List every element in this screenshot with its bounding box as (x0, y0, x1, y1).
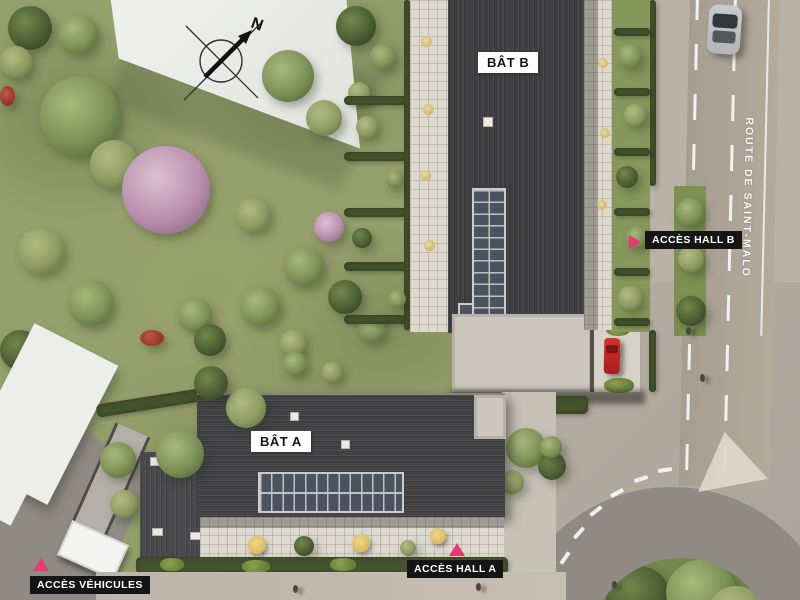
bat-a-roof-terrace (474, 395, 506, 439)
tree (194, 366, 228, 400)
bat-b-solar-panels (472, 188, 506, 316)
tree (388, 290, 406, 308)
garden-hedge (614, 148, 650, 156)
access-marker-icon (449, 543, 465, 556)
tree (540, 436, 562, 458)
skylight (290, 412, 299, 421)
parasol (430, 528, 446, 544)
tree (616, 166, 638, 188)
tree (100, 442, 136, 478)
tree (400, 540, 416, 556)
tree (322, 362, 342, 382)
parasol (597, 200, 607, 210)
bush (330, 558, 356, 571)
tree (284, 246, 324, 286)
access-marker-icon (629, 235, 641, 249)
parasol (598, 58, 608, 68)
acces-hall-a-label: ACCÈS HALL A (407, 560, 503, 578)
pink-blossom-tree (122, 146, 210, 234)
bush (160, 558, 184, 571)
car-windshield (712, 13, 738, 29)
tree (352, 228, 372, 248)
garden-hedge (614, 88, 650, 96)
bat-a-label: BÂT A (251, 431, 311, 452)
pedestrian (293, 585, 298, 593)
acces-hall-b-label: ACCÈS HALL B (645, 231, 742, 249)
parasol (420, 170, 431, 181)
tree (370, 44, 396, 70)
pink-blossom-tree (314, 212, 344, 242)
tree (618, 286, 642, 310)
bat-a-solar-panels (258, 472, 404, 513)
tree (236, 198, 270, 232)
tree (8, 6, 52, 50)
boundary-hedge (649, 330, 656, 392)
tree (294, 536, 314, 556)
tree (678, 246, 704, 272)
tree (624, 104, 646, 126)
skylight (341, 440, 350, 449)
pedestrian (476, 583, 481, 591)
tree (336, 6, 376, 46)
red-flowering-bush (140, 330, 164, 346)
pedestrian (612, 581, 617, 589)
skylight (152, 528, 163, 536)
tree (110, 490, 138, 518)
parasol (421, 36, 432, 47)
garden-hedge (614, 208, 650, 216)
tree (156, 430, 204, 478)
pedestrian (700, 374, 705, 382)
bat-b-west-terraces (410, 0, 448, 332)
bat-b-lower-roof (452, 314, 592, 392)
garden-hedge (614, 28, 650, 36)
access-marker-icon (33, 558, 49, 571)
site-plan-canvas: ROUTE DE SAINT-MALO (0, 0, 800, 600)
tree (226, 388, 266, 428)
tree (194, 324, 226, 356)
tree (306, 100, 342, 136)
tree (58, 14, 98, 54)
parasol (352, 534, 370, 552)
bat-b-label: BÂT B (478, 52, 538, 73)
tree (618, 44, 642, 68)
parasol (600, 128, 610, 138)
car-roof (712, 30, 736, 44)
parasol (423, 104, 434, 115)
building-shadow (200, 517, 504, 528)
parasol (248, 536, 266, 554)
garden-hedge (614, 268, 650, 276)
tree (386, 170, 404, 188)
tree (328, 280, 362, 314)
pedestrian (686, 327, 691, 335)
compass-icon: N (168, 6, 278, 116)
acces-vehicules-label: ACCÈS VÉHICULES (30, 576, 150, 594)
tree (68, 280, 114, 326)
boundary-hedge (649, 0, 656, 186)
tree (0, 46, 32, 78)
silver-car (706, 4, 742, 55)
tree (676, 296, 706, 326)
red-car (604, 338, 621, 374)
building-shadow (584, 0, 598, 330)
tree (283, 352, 307, 376)
tree (240, 286, 280, 326)
car-windshield (606, 345, 618, 353)
tree (356, 116, 378, 138)
skylight (483, 117, 493, 127)
tree (18, 228, 64, 274)
tree (676, 198, 704, 226)
parasol (424, 240, 435, 251)
red-flowering-bush (0, 86, 15, 106)
garden-hedge (614, 318, 650, 326)
